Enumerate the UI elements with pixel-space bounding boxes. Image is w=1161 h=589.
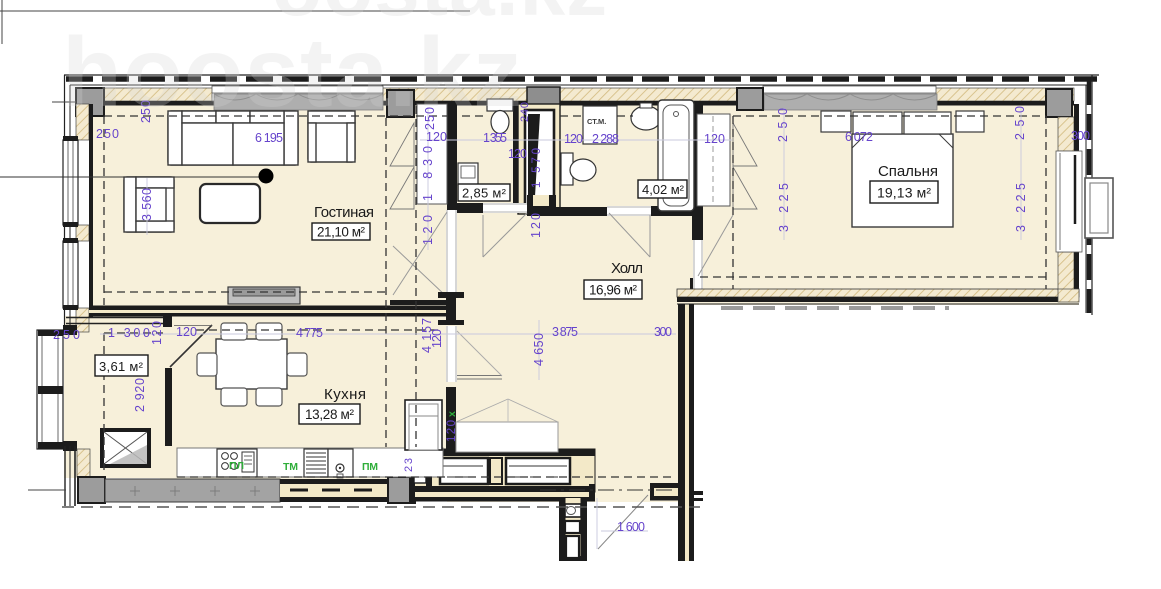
svg-text:300: 300	[654, 325, 672, 339]
svg-text:120: 120	[529, 213, 543, 238]
svg-text:2 920: 2 920	[133, 378, 147, 412]
svg-text:1 300: 1 300	[108, 326, 150, 340]
svg-text:4,02 м²: 4,02 м²	[642, 182, 685, 197]
svg-text:2 288: 2 288	[592, 132, 619, 146]
svg-text:Кухня: Кухня	[324, 386, 366, 403]
svg-text:19,13 м²: 19,13 м²	[877, 185, 931, 201]
svg-text:4 650: 4 650	[532, 333, 546, 366]
svg-text:250: 250	[776, 108, 790, 142]
svg-text:3 875: 3 875	[552, 325, 578, 339]
svg-text:3,61 м²: 3,61 м²	[99, 359, 144, 374]
svg-text:hoosta.kz: hoosta.kz	[62, 17, 523, 127]
svg-text:120: 120	[421, 215, 435, 245]
svg-text:6 195: 6 195	[255, 131, 283, 145]
svg-text:Холл: Холл	[611, 260, 643, 277]
svg-text:6 072: 6 072	[845, 130, 873, 144]
svg-text:2,85 м²: 2,85 м²	[462, 186, 507, 201]
svg-text:120: 120	[176, 325, 197, 339]
svg-text:3 560: 3 560	[140, 188, 154, 221]
svg-text:120: 120	[150, 321, 164, 345]
svg-text:1 355: 1 355	[483, 131, 507, 145]
svg-text:oosta.kz: oosta.kz	[272, 0, 608, 33]
svg-text:ТМ: ТМ	[283, 461, 298, 473]
svg-text:СТ.М.: СТ.М.	[587, 117, 606, 126]
svg-text:120: 120	[508, 147, 527, 161]
svg-text:120: 120	[564, 132, 583, 146]
svg-text:ПМ: ПМ	[362, 461, 378, 473]
svg-text:Спальня: Спальня	[878, 163, 938, 180]
svg-text:300: 300	[1071, 129, 1090, 143]
svg-text:250: 250	[96, 127, 119, 141]
svg-text:250: 250	[1013, 106, 1027, 140]
svg-text:1 600: 1 600	[617, 520, 645, 534]
svg-text:ПЛ: ПЛ	[229, 460, 244, 472]
svg-text:120: 120	[704, 132, 725, 146]
svg-text:21,10 м²: 21,10 м²	[317, 225, 366, 240]
svg-text:120: 120	[446, 420, 458, 442]
svg-text:120: 120	[426, 130, 447, 144]
svg-text:16,96 м²: 16,96 м²	[589, 283, 638, 298]
svg-text:Гостиная: Гостиная	[314, 204, 374, 221]
svg-text:13,28 м²: 13,28 м²	[305, 407, 355, 422]
svg-text:4 775: 4 775	[296, 326, 323, 340]
svg-text:250: 250	[53, 328, 80, 342]
svg-text:1 570: 1 570	[531, 148, 543, 188]
svg-text:120: 120	[430, 329, 444, 348]
svg-text:х: х	[446, 411, 458, 417]
svg-text:23: 23	[403, 458, 415, 472]
